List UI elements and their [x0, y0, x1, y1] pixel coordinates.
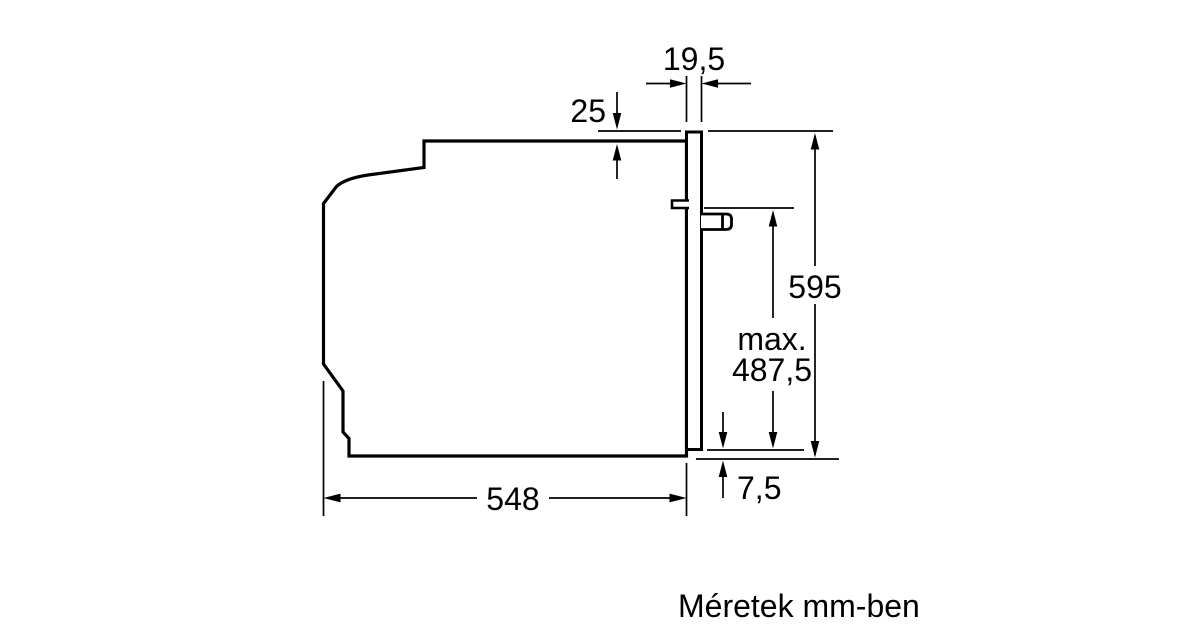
door-hinge-tab	[672, 201, 689, 209]
arrowhead-down-icon	[719, 432, 728, 449]
dim-depth-label: 548	[486, 481, 539, 517]
oven-door-panel	[687, 132, 702, 450]
dim-max-handle-height: max. 487,5	[704, 208, 812, 449]
door-handle	[701, 214, 732, 230]
dim-max-label-line2: 487,5	[732, 352, 812, 388]
oven-body-outline	[324, 141, 687, 456]
arrowhead-down-icon	[769, 432, 778, 449]
dim-top-clearance-label: 25	[570, 93, 606, 129]
arrowhead-down-icon	[613, 113, 622, 130]
dim-bottom-clearance-label: 7,5	[737, 470, 781, 506]
arrowhead-left-icon	[702, 79, 719, 88]
arrowhead-left-icon	[324, 494, 341, 503]
arrowhead-right-icon	[670, 79, 687, 88]
dim-height: 595	[696, 131, 842, 459]
arrowhead-up-icon	[719, 461, 728, 478]
dim-height-label: 595	[788, 269, 841, 305]
diagram-canvas: 19,5 25 595 max. 487,5	[0, 0, 1200, 630]
arrowhead-down-icon	[811, 441, 820, 458]
dim-door-thickness: 19,5	[646, 41, 751, 122]
oven-outline-group	[324, 132, 732, 456]
arrowhead-right-icon	[670, 494, 687, 503]
oven-dimension-diagram: 19,5 25 595 max. 487,5	[0, 0, 1200, 630]
dim-door-thickness-label: 19,5	[663, 41, 725, 77]
units-caption: Méretek mm-ben	[678, 588, 920, 624]
